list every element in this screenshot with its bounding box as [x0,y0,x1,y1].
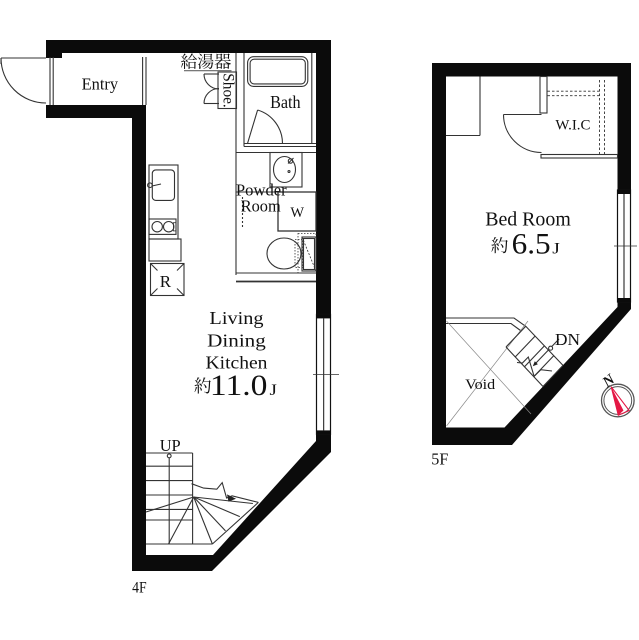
svg-text:Bed Room: Bed Room [485,209,571,231]
svg-text:Room: Room [241,196,281,215]
svg-text:6.5: 6.5 [512,229,551,261]
svg-text:4F: 4F [132,580,147,597]
svg-text:R: R [160,272,172,291]
svg-text:Shoe.: Shoe. [220,73,237,108]
svg-text:J: J [270,382,277,399]
svg-text:Bath: Bath [270,92,301,112]
svg-text:Dining: Dining [207,330,266,350]
svg-text:Void: Void [465,377,496,393]
svg-text:5F: 5F [431,449,448,468]
svg-text:DN: DN [555,330,580,349]
svg-text:UP: UP [160,436,181,455]
svg-text:Entry: Entry [82,74,119,93]
svg-text:W: W [290,205,304,221]
svg-text:Living: Living [209,308,263,328]
svg-text:J: J [552,241,560,258]
svg-text:W.I.C: W.I.C [555,118,590,134]
svg-text:11.0: 11.0 [210,370,268,402]
